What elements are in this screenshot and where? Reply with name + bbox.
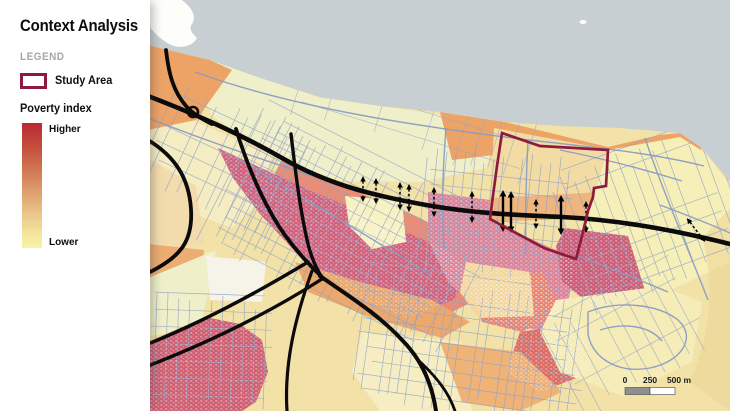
legend-panel: Context Analysis LEGEND Study Area Pover… [0,0,150,411]
poverty-higher-label: Higher [49,123,81,135]
scale-bar-right-segment [650,388,675,395]
scale-bar-left-segment [625,388,650,395]
boat-icon [580,20,587,24]
poverty-index-heading: Poverty index [20,103,144,115]
poverty-lower-label: Lower [49,236,81,248]
scale-tick-250: 250 [643,375,657,385]
study-area-swatch-icon [20,73,47,89]
poverty-gradient-icon [22,123,42,248]
page-title: Context Analysis [20,16,134,36]
poverty-gradient-labels: Higher Lower [49,123,82,248]
scale-tick-0: 0 [623,375,628,385]
context-analysis-screen: Context Analysis LEGEND Study Area Pover… [0,0,730,411]
study-area-label: Study Area [55,75,112,87]
scale-tick-500: 500 m [667,375,692,385]
poverty-gradient-row: Higher Lower [22,123,150,248]
study-area-legend-row: Study Area [20,73,150,89]
legend-heading: LEGEND [20,51,137,63]
